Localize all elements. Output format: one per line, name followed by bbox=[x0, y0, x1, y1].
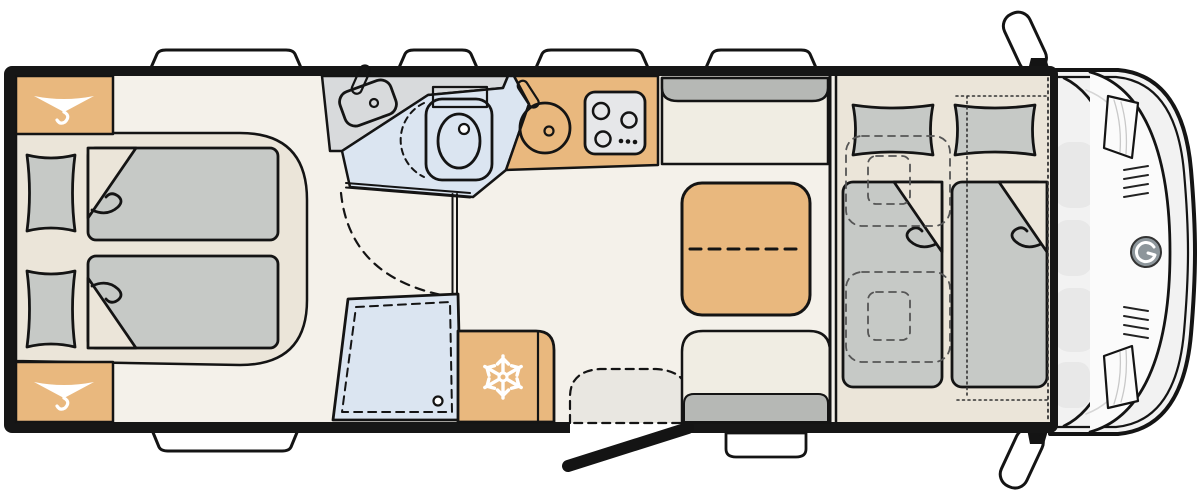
dinette bbox=[662, 76, 830, 423]
bench-backrest bbox=[662, 78, 828, 101]
shower bbox=[333, 294, 461, 420]
pillow bbox=[27, 155, 75, 231]
pillow bbox=[853, 105, 933, 155]
motorhome-floorplan bbox=[0, 0, 1200, 503]
cab-dashboard-shape bbox=[1054, 142, 1096, 208]
floorplan-canvas bbox=[0, 0, 1200, 503]
pillow bbox=[27, 271, 75, 347]
door-swing-arc bbox=[570, 369, 688, 423]
shower-drain bbox=[434, 397, 443, 406]
toilet-flush bbox=[459, 124, 469, 134]
refrigerator bbox=[458, 331, 554, 422]
bottom-window bbox=[152, 430, 298, 451]
kitchen bbox=[506, 76, 658, 170]
bench-backrest bbox=[684, 394, 828, 422]
bottom-vent-window bbox=[1104, 346, 1138, 408]
cab-console-shape bbox=[1054, 220, 1092, 276]
cab-front bbox=[1050, 70, 1195, 434]
front-bed bbox=[836, 76, 1050, 422]
brand-swirl-icon bbox=[1131, 237, 1161, 267]
cab-dashboard-shape bbox=[1054, 288, 1096, 352]
cab-console-shape bbox=[1054, 362, 1090, 408]
entry-step bbox=[726, 433, 806, 457]
top-vent-window bbox=[1104, 96, 1138, 158]
